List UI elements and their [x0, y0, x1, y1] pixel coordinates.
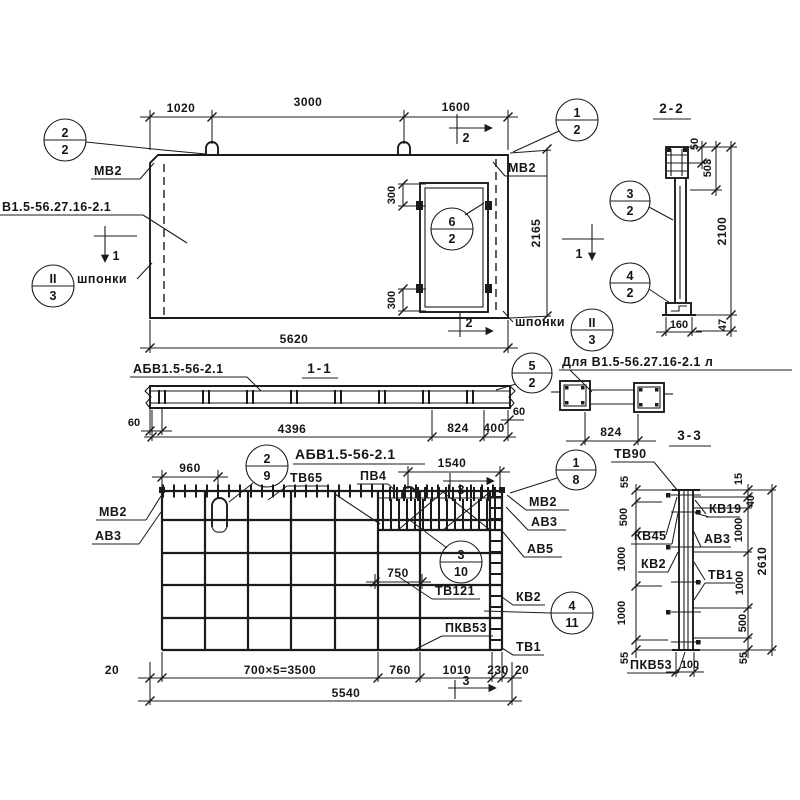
label-pkv53: ПКВ53	[445, 621, 487, 635]
dim-300-top: 300	[386, 186, 398, 204]
callout-number: 4	[627, 269, 634, 283]
label-av3-left: АВ3	[95, 529, 122, 543]
dim-55: 55	[619, 476, 631, 488]
section-label: 3	[463, 674, 470, 688]
dim-824-right: 824	[600, 425, 622, 439]
callout-sheet: 2	[62, 143, 69, 157]
dim-503: 503	[702, 159, 714, 177]
label-kv2: КВ2	[641, 557, 666, 571]
label-mv2-right: МВ2	[508, 161, 536, 175]
dim-4396: 4396	[278, 422, 307, 436]
paper-background	[0, 0, 800, 800]
dim-160: 160	[670, 319, 688, 331]
dim-400: 400	[483, 421, 505, 435]
callout-sheet: 2	[449, 232, 456, 246]
label-panel-mark: В1.5-56.27.16-2.1	[2, 200, 111, 214]
dim-60-right: 60	[513, 406, 525, 418]
dim-60-left: 60	[128, 417, 140, 429]
callout-key-left: II 3	[32, 265, 74, 307]
label-av5: АВ5	[527, 542, 554, 556]
label-tv1: ТВ1	[708, 568, 733, 582]
callout-sheet: 10	[454, 565, 468, 579]
dim-760: 760	[389, 663, 411, 677]
callout-number: 6	[449, 215, 456, 229]
dim-2165: 2165	[529, 219, 543, 248]
panel-engineering-drawing: 300 300 6 2 1020 3000 1600 2165 5620	[0, 0, 800, 800]
label-kv2: КВ2	[516, 590, 541, 604]
dim-15: 15	[733, 473, 745, 485]
label-tv1: ТВ1	[516, 640, 541, 654]
section-title: 2-2	[659, 101, 685, 116]
dim-20-right: 20	[515, 663, 529, 677]
section-label: 1	[576, 247, 583, 261]
label-pkv53: ПКВ53	[630, 658, 672, 672]
dim-47: 47	[717, 319, 729, 331]
label-shponki-right: шпонки	[515, 315, 565, 329]
section-title: 1-1	[307, 361, 333, 376]
dim-300-bottom: 300	[386, 291, 398, 309]
dim-1020: 1020	[167, 101, 196, 115]
anchor-plate	[485, 284, 492, 293]
callout-number: 3	[458, 548, 465, 562]
callout-sheet: 3	[50, 289, 57, 303]
dim-1000: 1000	[734, 571, 746, 595]
callout-number: 3	[627, 187, 634, 201]
label-product-mark: АБВ1.5-56-2.1	[133, 362, 224, 376]
callout-number: 2	[264, 452, 271, 466]
callout-number: 4	[569, 599, 576, 613]
dim-750: 750	[387, 566, 409, 580]
section-label: 2	[466, 316, 473, 330]
dim-824: 824	[447, 421, 469, 435]
dim-100: 100	[681, 659, 699, 671]
callout-sheet: 8	[573, 473, 580, 487]
callout-sheet: 2	[574, 123, 581, 137]
dim-500: 500	[737, 614, 749, 632]
section-label: 2	[463, 131, 470, 145]
label-pv4: ПВ4	[360, 469, 386, 483]
section-label: 3	[458, 483, 465, 497]
label-mv2-right: МВ2	[529, 495, 557, 509]
callout-number: 5	[529, 359, 536, 373]
label-kv45: КВ45	[634, 529, 667, 543]
label-variant: Для В1.5-56.27.16-2.1 л	[562, 355, 713, 369]
rebar-title: АБВ1.5-56-2.1	[295, 446, 396, 462]
dim-50: 50	[689, 138, 701, 150]
label-tv90: ТВ90	[614, 447, 647, 461]
dim-2100: 2100	[715, 217, 729, 246]
dim-500: 500	[618, 508, 630, 526]
section-title: 3-3	[677, 428, 703, 443]
label-av3: АВ3	[704, 532, 731, 546]
dim-1600: 1600	[442, 100, 471, 114]
label-tv65: ТВ65	[290, 471, 323, 485]
dim-230: 230	[487, 663, 509, 677]
callout-sheet: 3	[589, 333, 596, 347]
dim-40: 40	[745, 495, 757, 507]
callout-sheet: 11	[565, 616, 578, 630]
callout-number: 2	[62, 126, 69, 140]
callout-sheet: 2	[627, 204, 634, 218]
drawing-page: 300 300 6 2 1020 3000 1600 2165 5620	[0, 0, 800, 800]
callout-number: II	[50, 272, 57, 286]
callout-sheet: 2	[627, 286, 634, 300]
label-tv121: ТВ121	[435, 584, 475, 598]
dim-3500: 700×5=3500	[244, 663, 316, 677]
callout-sheet: 9	[264, 469, 271, 483]
callout-key-right: II 3	[571, 309, 613, 351]
dim-1000: 1000	[616, 547, 628, 571]
dim-1540: 1540	[438, 456, 467, 470]
callout-number: II	[589, 316, 596, 330]
dim-1000: 1000	[616, 601, 628, 625]
anchor-plate	[485, 201, 492, 210]
label-mv2-left: МВ2	[99, 505, 127, 519]
dim-1000: 1000	[733, 518, 745, 542]
dim-55: 55	[738, 652, 750, 664]
dim-5620: 5620	[280, 332, 309, 346]
callout-number: 1	[573, 456, 580, 470]
callout-sheet: 2	[529, 376, 536, 390]
label-shponki-left: шпонки	[77, 272, 127, 286]
label-kv19: КВ19	[709, 502, 742, 516]
callout-number: 1	[574, 106, 581, 120]
label-av3-right: АВ3	[531, 515, 558, 529]
label-mv2-left: МВ2	[94, 164, 122, 178]
section-label: 1	[113, 249, 120, 263]
dim-960: 960	[179, 461, 201, 475]
dim-2610: 2610	[755, 547, 769, 576]
dim-3000: 3000	[294, 95, 323, 109]
dim-20-left: 20	[105, 663, 119, 677]
dim-5540: 5540	[332, 686, 361, 700]
